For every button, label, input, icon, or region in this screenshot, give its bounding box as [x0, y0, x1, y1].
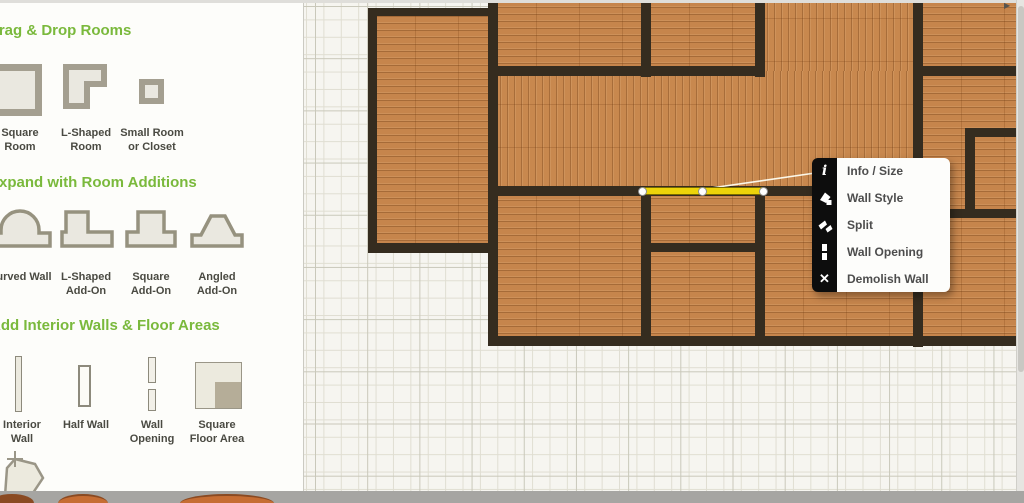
room-left-tall[interactable]	[372, 12, 493, 248]
bottom-banner-strip	[0, 491, 1024, 503]
item-label: Small Room or Closet	[117, 126, 187, 154]
l-shaped-add-on-icon[interactable]	[60, 208, 114, 248]
wall[interactable]	[488, 66, 765, 76]
vertical-scrollbar-thumb[interactable]	[1018, 6, 1024, 372]
wall[interactable]	[368, 8, 498, 16]
section-title-drag-drop-rooms: Drag & Drop Rooms	[0, 22, 131, 39]
l-shaped-room-icon[interactable]	[62, 63, 108, 110]
curved-wall-icon[interactable]	[0, 206, 52, 248]
menu-item-wall-style[interactable]: Wall Style	[837, 185, 950, 212]
split-icon[interactable]	[812, 212, 837, 239]
menu-item-demolish-wall[interactable]: Demolish Wall	[837, 265, 950, 292]
wall[interactable]	[641, 186, 651, 344]
item-label: Square Add-On	[125, 270, 177, 298]
square-add-on-icon[interactable]	[125, 208, 177, 248]
banner-image-fragment	[58, 494, 108, 503]
room-right-top[interactable]	[918, 3, 1016, 71]
item-label: L-Shaped Room	[57, 126, 115, 154]
item-label: Curved Wall	[0, 270, 60, 284]
wall-style-icon[interactable]	[812, 185, 837, 212]
banner-image-fragment	[0, 494, 34, 503]
split-tiles-icon	[817, 217, 833, 233]
item-label: Angled Add-On	[191, 270, 243, 298]
angled-add-on-icon[interactable]	[190, 212, 244, 248]
canvas-top-edge	[0, 0, 1016, 3]
wall[interactable]	[965, 128, 975, 218]
wall-midpoint-handle[interactable]	[698, 187, 707, 196]
tools-sidebar: Drag & Drop Rooms Square Room L-Shaped R…	[0, 0, 304, 503]
section-title-interior-walls: Add Interior Walls & Floor Areas	[0, 317, 220, 334]
wall-endpoint-handle[interactable]	[638, 187, 647, 196]
square-floor-area-icon[interactable]	[195, 362, 242, 409]
banner-image-fragment	[180, 494, 274, 503]
section-title-room-additions: Expand with Room Additions	[0, 174, 197, 191]
menu-item-wall-opening[interactable]: Wall Opening	[837, 238, 950, 265]
item-label: L-Shaped Add-On	[57, 270, 115, 298]
half-wall-icon[interactable]	[78, 365, 91, 407]
menu-item-info-size[interactable]: Info / Size	[837, 158, 950, 185]
wall[interactable]	[488, 3, 498, 344]
demolish-wall-icon[interactable]: ✕	[812, 265, 837, 292]
wall[interactable]	[488, 336, 1016, 346]
item-label: Square Floor Area	[184, 418, 250, 446]
menu-items: Info / Size Wall Style Split Wall Openin…	[837, 158, 950, 292]
room-mid-small[interactable]	[646, 191, 760, 248]
wall-context-menu: i ✕ Info / Size Wall Style Split Wall Op…	[812, 158, 950, 292]
room-bottom-left[interactable]	[493, 191, 646, 341]
scroll-right-arrow[interactable]: ▶	[1004, 1, 1010, 10]
wall-opening-icon[interactable]	[812, 238, 837, 265]
item-label: Interior Wall	[0, 418, 45, 446]
wall[interactable]	[755, 186, 765, 344]
small-room-icon[interactable]	[139, 79, 164, 104]
wall[interactable]	[368, 8, 377, 253]
item-label: Half Wall	[55, 418, 117, 432]
square-room-icon[interactable]	[0, 64, 42, 116]
wall[interactable]	[913, 66, 1016, 76]
vertical-scrollbar[interactable]	[1016, 0, 1024, 491]
item-label: Square Room	[0, 126, 45, 154]
wall-opening-tool-icon[interactable]	[148, 357, 156, 413]
menu-icon-strip: i ✕	[812, 158, 837, 292]
info-size-icon[interactable]: i	[812, 158, 837, 185]
room-top-closet-b[interactable]	[646, 3, 760, 71]
item-label: Wall Opening	[126, 418, 178, 446]
room-top-closet-a[interactable]	[493, 3, 646, 71]
wall[interactable]	[368, 243, 498, 253]
room-mid-lower[interactable]	[646, 248, 760, 341]
interior-wall-icon[interactable]	[15, 356, 22, 412]
wall-endpoint-handle[interactable]	[759, 187, 768, 196]
menu-item-split[interactable]: Split	[837, 212, 950, 239]
wall[interactable]	[641, 243, 765, 252]
paint-brush-icon	[817, 190, 833, 206]
